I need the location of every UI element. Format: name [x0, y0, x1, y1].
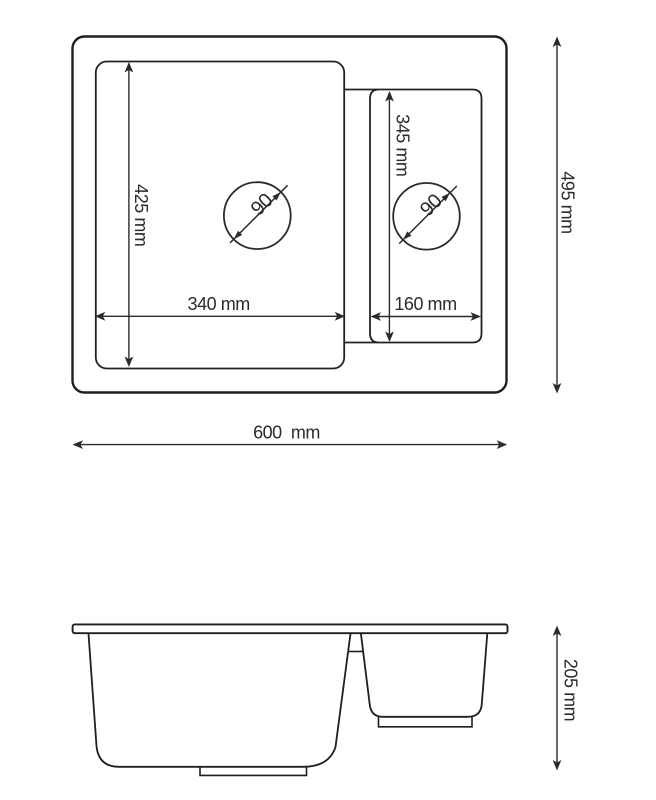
- svg-text:205 mm: 205 mm: [561, 659, 581, 721]
- svg-text:495 mm: 495 mm: [558, 171, 578, 233]
- svg-text:600 mm: 600 mm: [253, 423, 320, 443]
- svg-text:425 mm: 425 mm: [131, 184, 151, 246]
- svg-text:345 mm: 345 mm: [392, 114, 412, 176]
- svg-text:340 mm: 340 mm: [188, 294, 250, 314]
- svg-text:160 mm: 160 mm: [394, 294, 456, 314]
